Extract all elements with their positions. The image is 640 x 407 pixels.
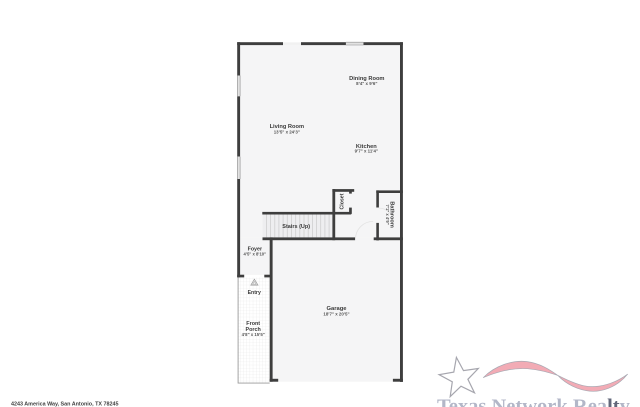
- svg-text:9’7" x 11’4": 9’7" x 11’4": [355, 149, 378, 154]
- svg-text:Closet: Closet: [339, 193, 345, 209]
- svg-text:Stairs (Up): Stairs (Up): [282, 224, 310, 230]
- svg-text:4’5" x 8’10": 4’5" x 8’10": [243, 252, 266, 257]
- svg-text:7’1" x 4’9": 7’1" x 4’9": [385, 204, 390, 224]
- svg-text:8’4" x 9’6": 8’4" x 9’6": [356, 81, 377, 86]
- svg-text:Entry: Entry: [248, 290, 261, 296]
- svg-text:Texas Network Realty: Texas Network Realty: [437, 395, 631, 407]
- svg-text:4243 America Way, San Antonio,: 4243 America Way, San Antonio, TX 78245: [11, 401, 118, 407]
- svg-text:18’7" x 20’5": 18’7" x 20’5": [323, 311, 349, 316]
- svg-text:13’5" x 24’3": 13’5" x 24’3": [274, 129, 300, 134]
- svg-text:4’8" x 15’5": 4’8" x 15’5": [242, 332, 265, 337]
